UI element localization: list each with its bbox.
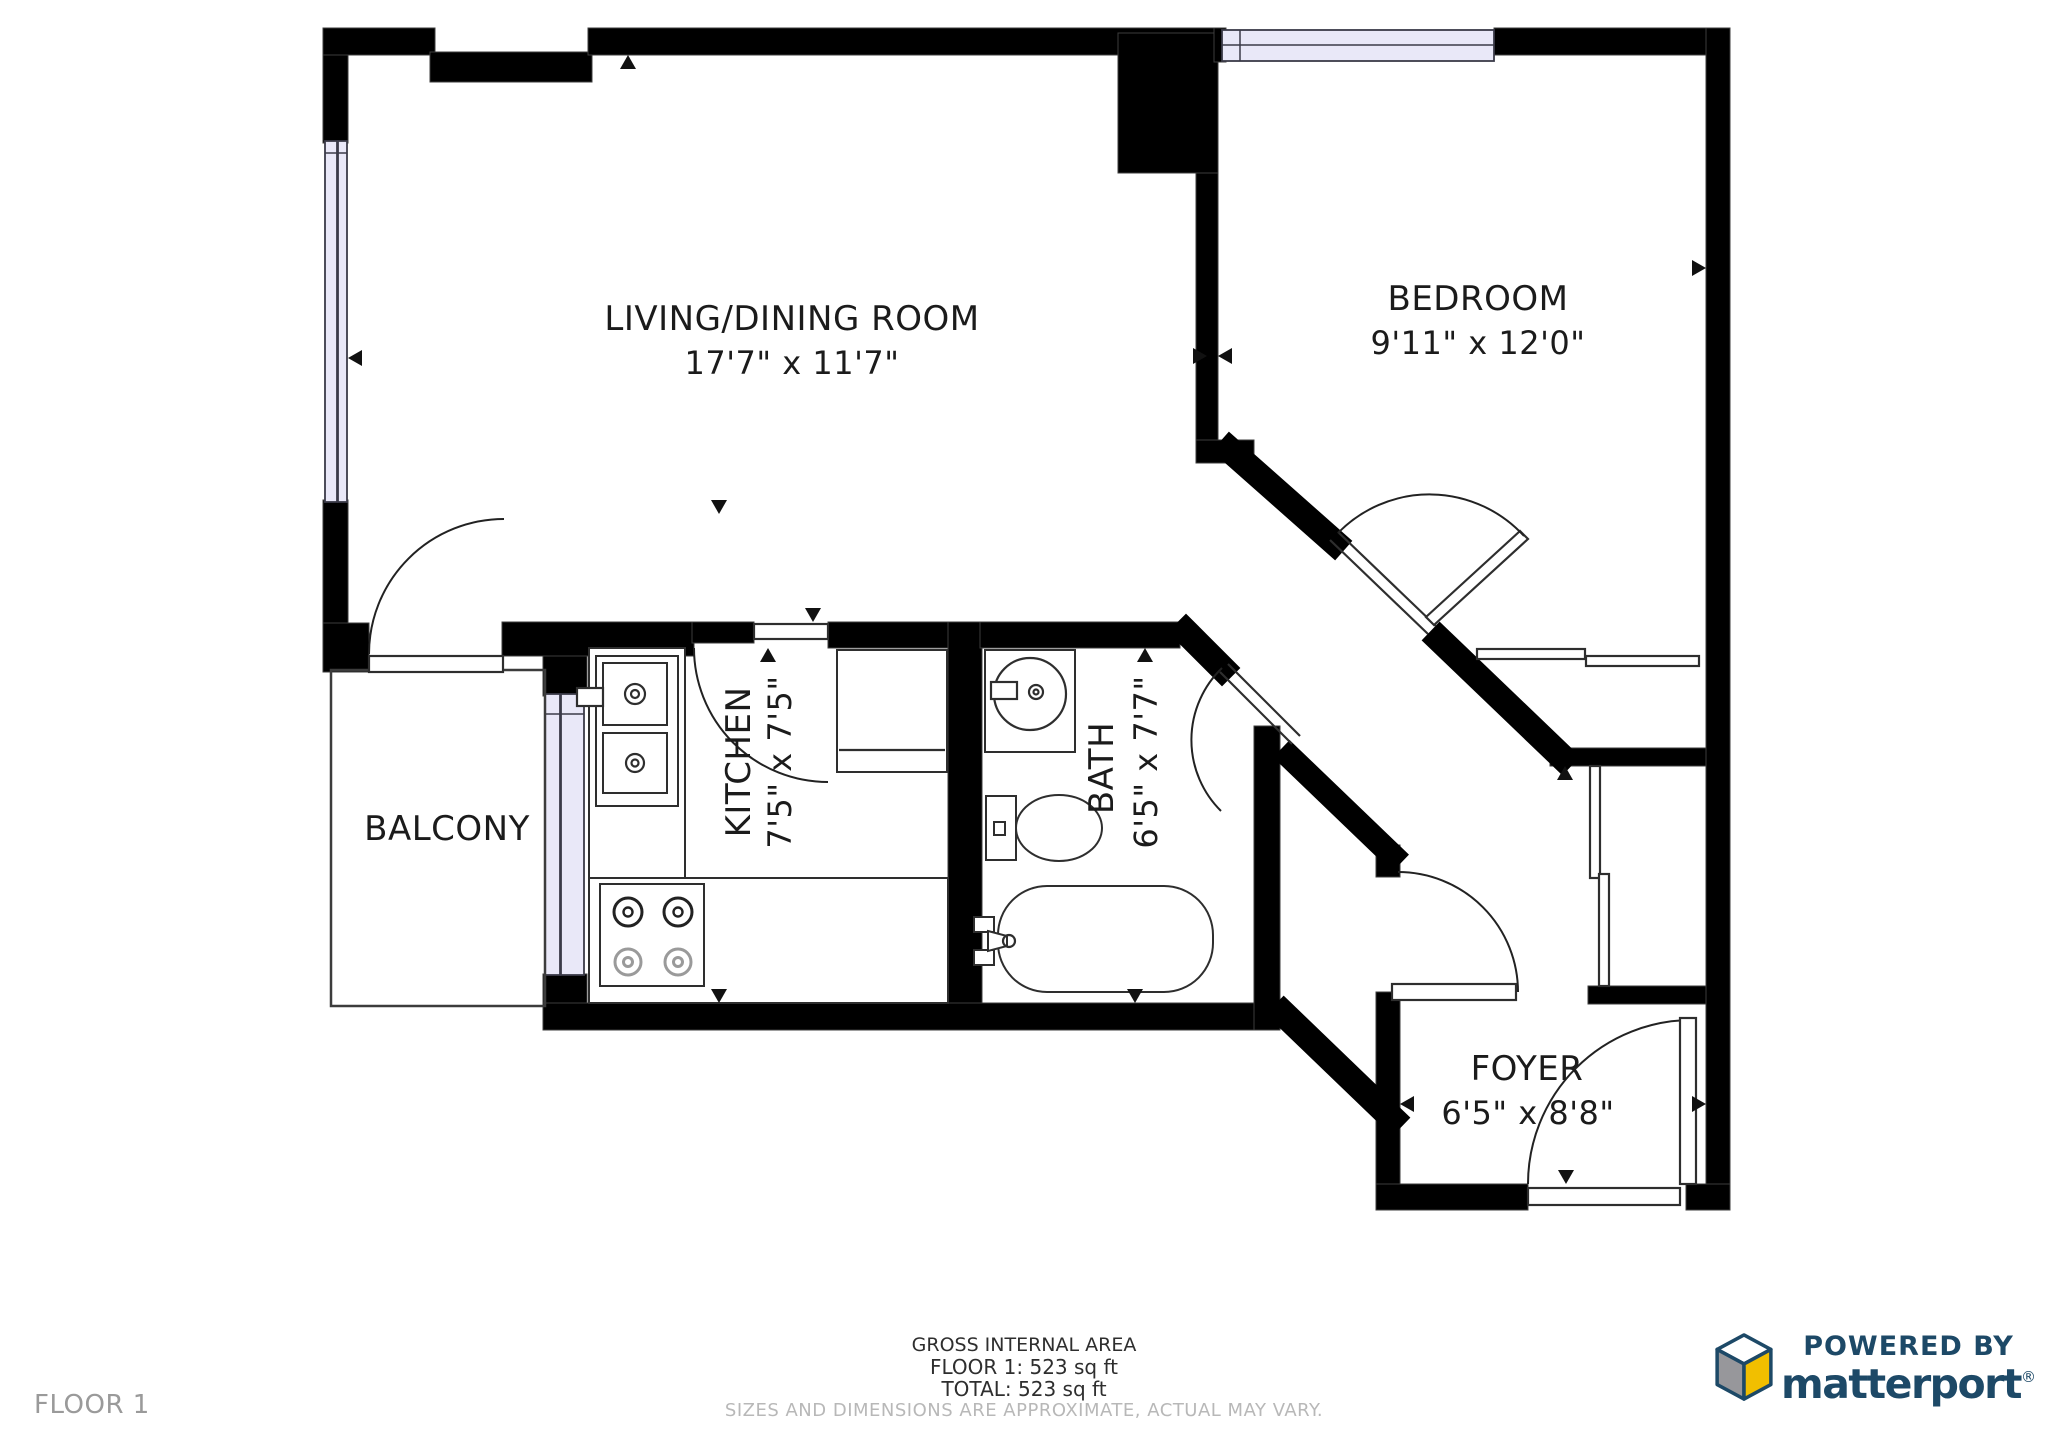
bedroom-label: BEDROOM [1388, 279, 1569, 319]
brand-text: POWERED BY matterport ® [1781, 1331, 2036, 1406]
kitchen-label: KITCHEN [719, 687, 759, 838]
bath-sink-icon [985, 650, 1075, 752]
living-room-label: LIVING/DINING ROOM [604, 299, 979, 339]
matterport-cube-icon [1713, 1330, 1775, 1404]
hallway-door-icon [1392, 872, 1518, 1000]
bath-fixtures [974, 650, 1213, 992]
foyer-dims: 6'5" x 8'8" [1441, 1094, 1614, 1132]
living-room-dims: 17'7" x 11'7" [685, 344, 900, 382]
brand-wordmark: matterport [1781, 1362, 2021, 1406]
powered-by-label: POWERED BY [1781, 1331, 2036, 1362]
floor-plan: LIVING/DINING ROOM 17'7" x 11'7" BEDROOM… [0, 0, 2048, 1448]
kitchen-dims: 7'5" x 7'5" [761, 675, 799, 848]
stove-icon [600, 884, 704, 986]
bath-door-icon [1191, 664, 1300, 811]
fridge-icon [837, 650, 947, 772]
balcony-label: BALCONY [364, 809, 530, 849]
bath-dims: 6'5" x 7'7" [1127, 675, 1165, 848]
matterport-branding: POWERED BY matterport ® [1713, 1330, 2036, 1406]
bedroom-dims: 9'11" x 12'0" [1371, 324, 1586, 362]
kitchen-balcony-window-icon [545, 694, 584, 975]
bedroom-door-icon [1330, 494, 1528, 634]
bedroom-window-icon [1222, 30, 1494, 61]
balcony-door-icon [369, 519, 504, 672]
bedroom-closet-sliding-door-icon [1477, 649, 1699, 666]
registered-trademark: ® [2021, 1368, 2036, 1386]
foyer-label: FOYER [1471, 1049, 1584, 1089]
bathtub-icon [974, 886, 1213, 992]
walls [323, 28, 1730, 1210]
bath-label: BATH [1082, 722, 1122, 814]
foyer-closet-sliding-door-icon [1590, 766, 1609, 986]
living-room-window-icon [325, 141, 347, 502]
